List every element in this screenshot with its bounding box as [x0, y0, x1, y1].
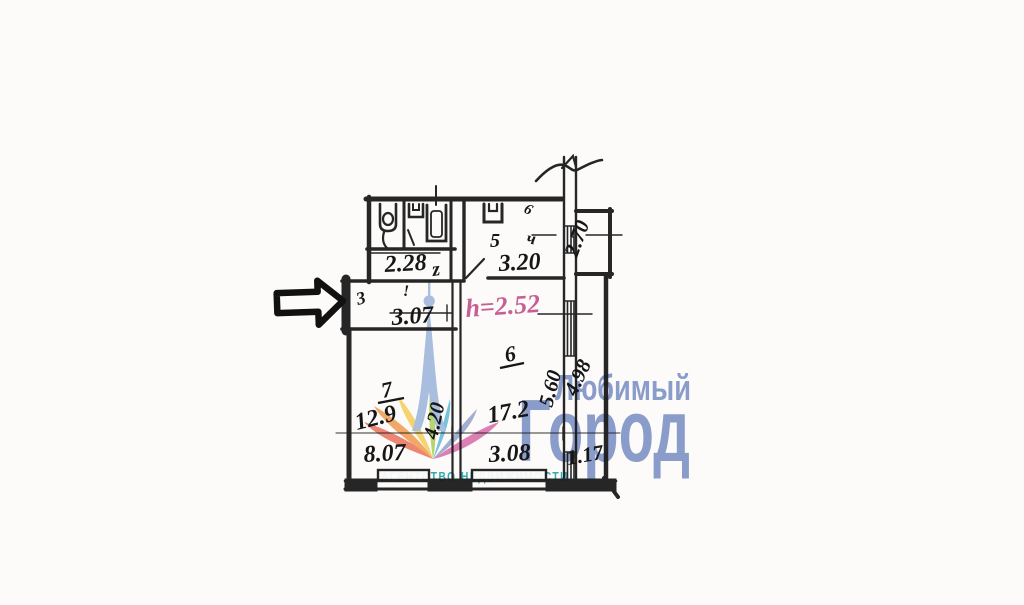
- svg-text:3.08: 3.08: [487, 440, 531, 468]
- svg-text:6: 6: [503, 340, 518, 367]
- svg-text:12.9: 12.9: [352, 400, 399, 435]
- svg-text:8.07: 8.07: [363, 440, 407, 468]
- svg-text:3.20: 3.20: [497, 249, 541, 277]
- svg-text:3: 3: [353, 287, 368, 309]
- svg-text:5: 5: [490, 230, 500, 252]
- svg-text:!: !: [403, 283, 409, 300]
- svg-text:6: 6: [521, 201, 535, 219]
- svg-text:h=2.52: h=2.52: [464, 289, 541, 323]
- svg-text:3.07: 3.07: [390, 302, 436, 331]
- svg-text:ч: ч: [525, 228, 537, 248]
- svg-text:z: z: [430, 258, 442, 281]
- svg-text:2.28: 2.28: [383, 250, 427, 278]
